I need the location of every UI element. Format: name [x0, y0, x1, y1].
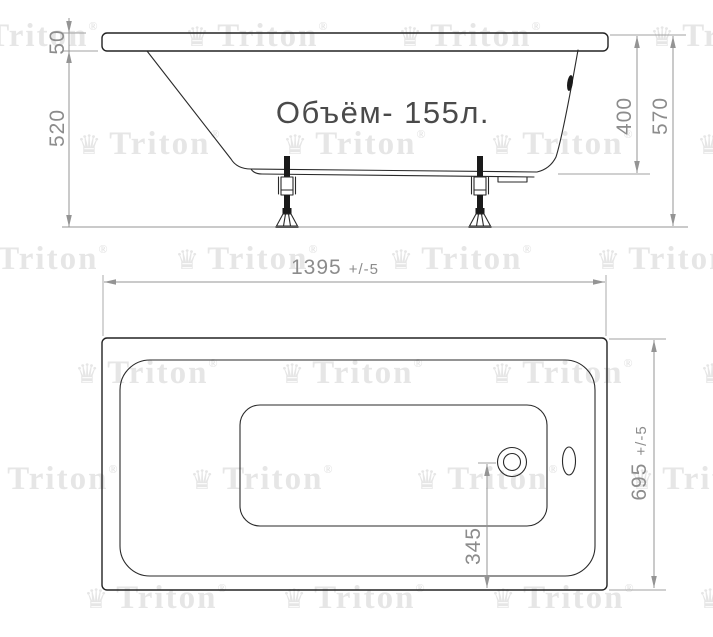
volume-label: Объём- 155л.	[276, 95, 490, 130]
dim-inner-depth-label: 400	[613, 97, 636, 135]
dim-width-label: 695+/-5	[628, 425, 651, 500]
triton-watermark: ♛Triton®	[185, 18, 329, 54]
watermark-brand-text: Triton	[7, 461, 108, 497]
triton-crown-icon: ♛	[398, 22, 424, 53]
dim-rim-height-label: 50	[46, 29, 69, 54]
technical-drawing: ♛Triton®♛Triton®♛Triton®♛Triton®♛Triton®…	[0, 0, 713, 637]
registered-mark: ®	[318, 19, 329, 33]
foot-left	[276, 156, 299, 227]
triton-crown-icon: ♛	[75, 359, 101, 390]
drawing-canvas: ♛Triton®♛Triton®♛Triton®♛Triton®♛Triton®…	[0, 0, 713, 637]
triton-watermark: ♛Triton®	[650, 18, 713, 54]
watermark-brand-text: Triton	[0, 18, 88, 54]
registered-mark: ®	[531, 19, 542, 33]
watermark-brand-text: Triton	[628, 241, 713, 277]
watermark-brand-text: Triton	[315, 126, 416, 162]
dim-total-height-label: 570	[649, 97, 672, 135]
triton-watermark: ♛Triton®	[596, 241, 713, 277]
triton-crown-icon: ♛	[490, 130, 516, 161]
triton-crown-icon: ♛	[77, 130, 103, 161]
triton-crown-icon: ♛	[282, 584, 308, 615]
watermark-brand-text: Triton	[682, 18, 713, 54]
watermark-brand-text: Triton	[421, 241, 522, 277]
registered-mark: ®	[208, 356, 219, 370]
triton-crown-icon: ♛	[491, 584, 517, 615]
triton-watermark: ♛Triton®	[389, 241, 533, 277]
watermark-brand-text: Triton	[0, 241, 98, 277]
triton-crown-icon: ♛	[700, 359, 713, 390]
registered-mark: ®	[548, 462, 559, 476]
triton-watermark: ♛Triton®	[700, 355, 713, 391]
triton-watermark: ♛Triton®	[697, 126, 713, 162]
triton-watermark: ♛Triton®	[282, 580, 426, 616]
watermark-brand-text: Triton	[222, 461, 323, 497]
watermark-brand-text: Triton	[523, 580, 624, 616]
triton-crown-icon: ♛	[84, 584, 110, 615]
triton-watermark: ♛Triton®	[190, 461, 334, 497]
triton-watermark: ♛Triton®	[698, 580, 713, 616]
triton-crown-icon: ♛	[185, 22, 211, 53]
drain-stub	[498, 177, 527, 182]
registered-mark: ®	[217, 581, 228, 595]
watermark-brand-text: Triton	[522, 126, 623, 162]
overflow-hole-top	[563, 447, 576, 475]
triton-crown-icon: ♛	[596, 245, 622, 276]
top-view: 1395+/-5 695+/-5 345	[102, 256, 666, 590]
triton-watermark: ♛Triton®	[398, 18, 542, 54]
registered-mark: ®	[88, 19, 99, 33]
registered-mark: ®	[522, 242, 533, 256]
registered-mark: ®	[308, 242, 319, 256]
triton-crown-icon: ♛	[280, 359, 306, 390]
triton-watermark: ♛Triton®	[283, 126, 427, 162]
watermark-brand-text: Triton	[662, 461, 713, 497]
registered-mark: ®	[323, 462, 334, 476]
foot-right	[469, 156, 492, 227]
triton-crown-icon: ♛	[490, 359, 516, 390]
registered-mark: ®	[108, 462, 119, 476]
watermark-brand-text: Triton	[314, 580, 415, 616]
triton-crown-icon: ♛	[190, 465, 216, 496]
triton-crown-icon: ♛	[0, 465, 1, 496]
triton-crown-icon: ♛	[697, 130, 713, 161]
triton-crown-icon: ♛	[389, 245, 415, 276]
triton-crown-icon: ♛	[175, 245, 201, 276]
triton-watermark: ♛Triton®	[84, 580, 228, 616]
registered-mark: ®	[98, 242, 109, 256]
triton-watermark: ♛Triton®	[77, 126, 221, 162]
side-rim	[102, 33, 608, 51]
triton-crown-icon: ♛	[650, 22, 676, 53]
watermark-brand-text: Triton	[116, 580, 217, 616]
registered-mark: ®	[624, 581, 635, 595]
registered-mark: ®	[415, 581, 426, 595]
watermark-brand-text: Triton	[109, 126, 210, 162]
watermark-brand-text: Triton	[430, 18, 531, 54]
dim-length-label: 1395+/-5	[291, 256, 379, 279]
side-view: 50 520 400 570 Объём- 155л.	[46, 18, 688, 227]
watermark-brand-text: Triton	[217, 18, 318, 54]
triton-crown-icon: ♛	[698, 584, 713, 615]
registered-mark: ®	[413, 356, 424, 370]
dim-body-height-label: 520	[46, 109, 69, 147]
triton-watermark: ♛Triton®	[491, 580, 635, 616]
registered-mark: ®	[623, 356, 634, 370]
triton-watermark: ♛Triton®	[0, 241, 109, 277]
triton-crown-icon: ♛	[415, 465, 441, 496]
dim-drain-offset-label: 345	[462, 527, 485, 565]
